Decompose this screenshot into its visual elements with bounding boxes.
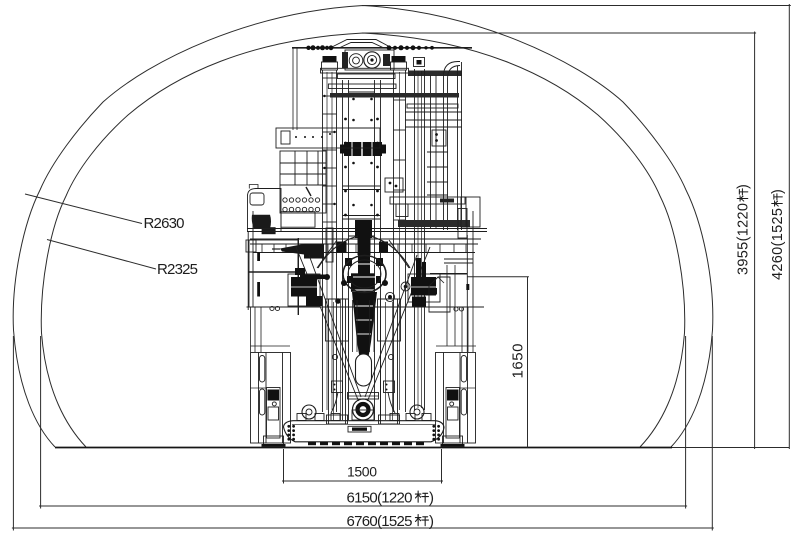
- svg-text:1500: 1500: [347, 464, 377, 480]
- svg-text:4260(1525: 4260(1525: [770, 208, 786, 280]
- svg-text:R2325: R2325: [157, 261, 198, 278]
- svg-text:): ): [736, 184, 752, 189]
- svg-text:): ): [770, 189, 786, 194]
- svg-text:3955(1220: 3955(1220: [736, 203, 752, 275]
- svg-text:6150(1220: 6150(1220: [347, 490, 413, 507]
- svg-text:R2630: R2630: [144, 215, 185, 232]
- svg-text:): ): [429, 513, 434, 530]
- svg-text:1650: 1650: [510, 344, 527, 379]
- svg-text:): ): [429, 490, 434, 507]
- svg-text:6760(1525: 6760(1525: [347, 513, 413, 530]
